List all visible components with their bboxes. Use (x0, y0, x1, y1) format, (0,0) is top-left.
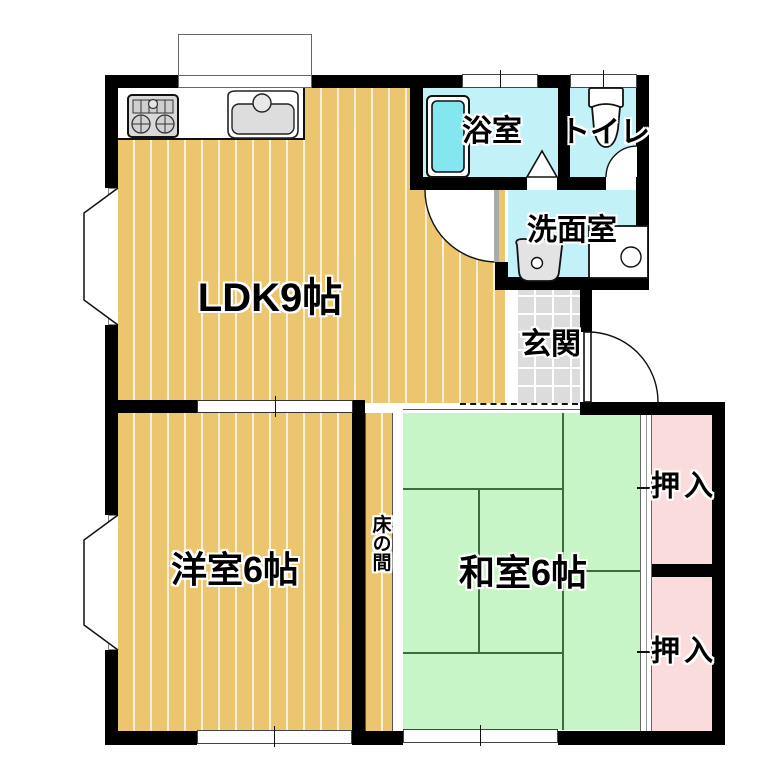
bay-window-western-room (84, 515, 118, 650)
washroom-label: 洗面室 (527, 216, 617, 246)
bathroom-label: 浴室 (462, 117, 522, 147)
bathroom-folding-door-icon (527, 151, 557, 177)
ldk-washroom-door-icon (425, 190, 499, 262)
entrance-door-icon (584, 332, 658, 402)
floor-plan: LDK9帖 浴室 トイレ 洗面室 玄関 洋室6帖 和室6帖 床の間 押入 押入 (0, 0, 763, 779)
bay-window-ldk (84, 188, 118, 325)
closet-lower-label: 押入 (651, 638, 717, 667)
closet-upper-label: 押入 (651, 473, 717, 502)
kitchen-sink-icon (228, 91, 298, 138)
gas-stove-icon (128, 95, 178, 137)
tokonoma-label: 床の間 (371, 515, 390, 572)
genkan-label: 玄関 (521, 330, 581, 360)
toilet-label: トイレ (560, 118, 650, 148)
toilet-door-icon (606, 146, 637, 177)
ldk-label: LDK9帖 (198, 278, 342, 318)
western-room-label: 洋室6帖 (171, 552, 299, 588)
japanese-room-label: 和室6帖 (459, 555, 587, 591)
